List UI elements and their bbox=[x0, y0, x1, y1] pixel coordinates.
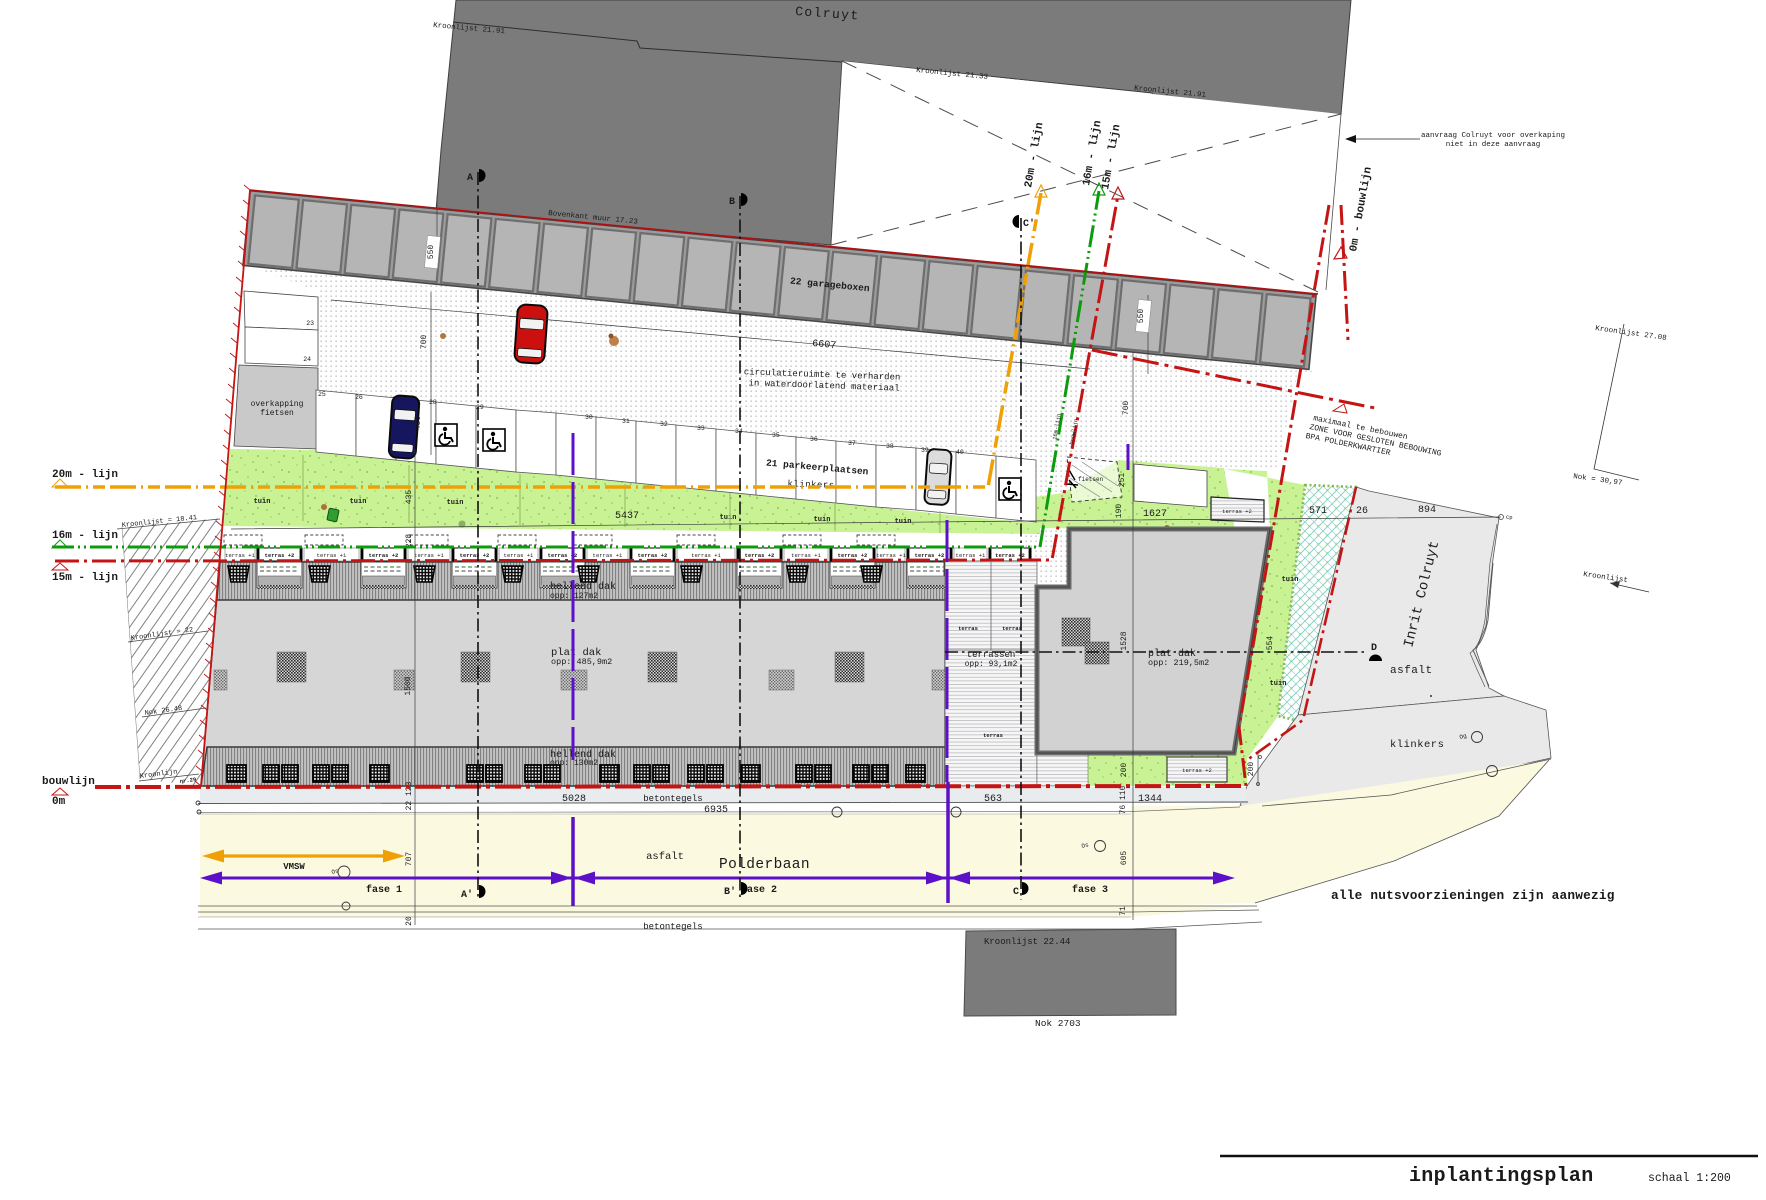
svg-text:terras +2: terras +2 bbox=[915, 552, 945, 559]
svg-text:0m: 0m bbox=[52, 796, 66, 808]
svg-text:terras +2: terras +2 bbox=[460, 552, 490, 559]
svg-text:34: 34 bbox=[735, 428, 743, 435]
svg-text:C: C bbox=[1013, 887, 1019, 898]
svg-text:terras +2: terras +2 bbox=[1182, 767, 1212, 774]
svg-text:B': B' bbox=[724, 886, 736, 898]
svg-text:tuin: tuin bbox=[1282, 576, 1299, 584]
svg-text:opp: 130m2: opp: 130m2 bbox=[550, 759, 598, 768]
svg-text:terras +2: terras +2 bbox=[838, 552, 868, 559]
svg-text:1500: 1500 bbox=[404, 676, 413, 695]
svg-text:klinkers: klinkers bbox=[1390, 739, 1444, 751]
svg-text:20: 20 bbox=[405, 916, 414, 926]
svg-text:1627: 1627 bbox=[1143, 509, 1167, 520]
svg-text:251: 251 bbox=[1118, 473, 1127, 488]
svg-text:VMSW: VMSW bbox=[283, 862, 305, 872]
svg-text:550: 550 bbox=[1137, 309, 1146, 324]
svg-text:fase 3: fase 3 bbox=[1072, 884, 1108, 896]
svg-text:terras +1: terras +1 bbox=[414, 552, 444, 559]
svg-text:35: 35 bbox=[772, 432, 780, 439]
svg-text:76 110: 76 110 bbox=[1119, 785, 1128, 814]
svg-text:terras +1: terras +1 bbox=[691, 552, 721, 559]
svg-text:24: 24 bbox=[303, 356, 311, 363]
svg-text:550: 550 bbox=[427, 245, 436, 260]
svg-text:Cp: Cp bbox=[1506, 514, 1513, 521]
svg-text:terras: terras bbox=[1002, 625, 1022, 632]
svg-text:31: 31 bbox=[622, 418, 630, 425]
svg-text:C': C' bbox=[1023, 218, 1035, 230]
svg-text:23: 23 bbox=[306, 320, 314, 327]
svg-text:16m - lijn: 16m - lijn bbox=[52, 530, 118, 542]
svg-text:opp: 93,1m2: opp: 93,1m2 bbox=[965, 660, 1018, 669]
svg-text:terras +1: terras +1 bbox=[956, 552, 986, 559]
svg-text:opp: 485,9m2: opp: 485,9m2 bbox=[551, 657, 612, 667]
svg-text:1344: 1344 bbox=[1138, 794, 1162, 805]
svg-text:terras +2: terras +2 bbox=[265, 552, 295, 559]
svg-text:terras +1: terras +1 bbox=[876, 552, 906, 559]
svg-text:Nok 2703: Nok 2703 bbox=[1035, 1018, 1081, 1029]
svg-text:563: 563 bbox=[984, 794, 1002, 805]
svg-text:betontegels: betontegels bbox=[643, 922, 702, 932]
svg-text:aanvraag Colruyt voor overkapi: aanvraag Colruyt voor overkaping bbox=[1421, 132, 1565, 140]
svg-text:25: 25 bbox=[318, 391, 326, 398]
svg-text:15m - lijn: 15m - lijn bbox=[52, 572, 118, 584]
svg-text:450: 450 bbox=[414, 416, 423, 431]
svg-text:200: 200 bbox=[1120, 763, 1129, 778]
svg-text:700: 700 bbox=[420, 335, 429, 350]
svg-text:28: 28 bbox=[429, 399, 437, 406]
svg-text:terras +1: terras +1 bbox=[791, 552, 821, 559]
svg-text:71: 71 bbox=[1119, 906, 1128, 916]
svg-text:26: 26 bbox=[355, 394, 363, 401]
svg-text:inplantingsplan: inplantingsplan bbox=[1409, 1165, 1594, 1188]
svg-text:asfalt: asfalt bbox=[646, 851, 684, 863]
svg-text:tuin: tuin bbox=[254, 498, 271, 506]
svg-text:700: 700 bbox=[1122, 401, 1131, 416]
svg-text:terras +2: terras +2 bbox=[745, 552, 775, 559]
svg-text:20m - lijn: 20m - lijn bbox=[52, 469, 118, 481]
svg-text:D: D bbox=[1371, 643, 1377, 654]
svg-text:5437: 5437 bbox=[615, 511, 639, 522]
svg-text:29: 29 bbox=[476, 404, 484, 411]
svg-text:A: A bbox=[467, 173, 473, 184]
svg-text:A': A' bbox=[461, 889, 473, 901]
svg-text:40: 40 bbox=[956, 449, 964, 456]
svg-text:terras +1: terras +1 bbox=[225, 552, 255, 559]
svg-text:terras +1: terras +1 bbox=[593, 552, 623, 559]
svg-text:opp: 219,5m2: opp: 219,5m2 bbox=[1148, 658, 1209, 668]
svg-text:fase 1: fase 1 bbox=[366, 884, 402, 896]
svg-text:terras: terras bbox=[958, 625, 978, 632]
svg-text:terras +2: terras +2 bbox=[638, 552, 668, 559]
svg-text:terras: terras bbox=[983, 732, 1003, 739]
svg-text:1528: 1528 bbox=[1120, 631, 1129, 650]
svg-text:terras +2: terras +2 bbox=[369, 552, 399, 559]
svg-text:707: 707 bbox=[405, 852, 414, 867]
svg-text:Polderbaan: Polderbaan bbox=[719, 857, 810, 873]
svg-text:terras +1: terras +1 bbox=[317, 552, 347, 559]
svg-text:6607: 6607 bbox=[812, 339, 837, 352]
svg-text:B: B bbox=[729, 197, 735, 208]
svg-text:klinkers: klinkers bbox=[787, 479, 835, 491]
svg-text:26: 26 bbox=[1356, 506, 1368, 517]
svg-text:bouwlijn: bouwlijn bbox=[42, 776, 95, 788]
svg-text:tuin: tuin bbox=[350, 498, 367, 506]
svg-text:894: 894 bbox=[1418, 505, 1436, 516]
svg-text:605: 605 bbox=[1120, 851, 1129, 866]
svg-text:32: 32 bbox=[660, 421, 668, 428]
svg-text:554: 554 bbox=[1266, 636, 1275, 651]
svg-text:30: 30 bbox=[585, 414, 593, 421]
svg-text:tuin: tuin bbox=[447, 499, 464, 507]
svg-text:190: 190 bbox=[1115, 504, 1124, 519]
svg-text:fietsen: fietsen bbox=[260, 409, 294, 418]
svg-text:6935: 6935 bbox=[704, 805, 728, 816]
svg-text:435: 435 bbox=[405, 490, 414, 505]
svg-text:38: 38 bbox=[886, 443, 894, 450]
svg-text:niet in deze aanvraag: niet in deze aanvraag bbox=[1446, 141, 1541, 149]
svg-text:fietsen: fietsen bbox=[1078, 476, 1104, 483]
svg-text:asfalt: asfalt bbox=[1390, 665, 1433, 677]
svg-text:5028: 5028 bbox=[562, 794, 586, 805]
svg-text:betontegels: betontegels bbox=[643, 794, 702, 804]
svg-text:36: 36 bbox=[810, 436, 818, 443]
svg-text:schaal 1:200: schaal 1:200 bbox=[1648, 1172, 1731, 1185]
svg-text:tuin: tuin bbox=[720, 514, 737, 522]
svg-text:terras +1: terras +1 bbox=[504, 552, 534, 559]
svg-text:200: 200 bbox=[1247, 762, 1256, 777]
svg-text:overkapping: overkapping bbox=[251, 400, 304, 409]
svg-text:tuin: tuin bbox=[1270, 680, 1287, 688]
svg-text:33: 33 bbox=[697, 425, 705, 432]
svg-text:alle nutsvoorzieningen zijn aa: alle nutsvoorzieningen zijn aanwezig bbox=[1331, 888, 1615, 903]
svg-text:37: 37 bbox=[848, 440, 856, 447]
svg-text:571: 571 bbox=[1309, 506, 1327, 517]
svg-text:Kroonlijst 22.44: Kroonlijst 22.44 bbox=[984, 937, 1070, 947]
svg-text:terras +2: terras +2 bbox=[1222, 508, 1252, 515]
